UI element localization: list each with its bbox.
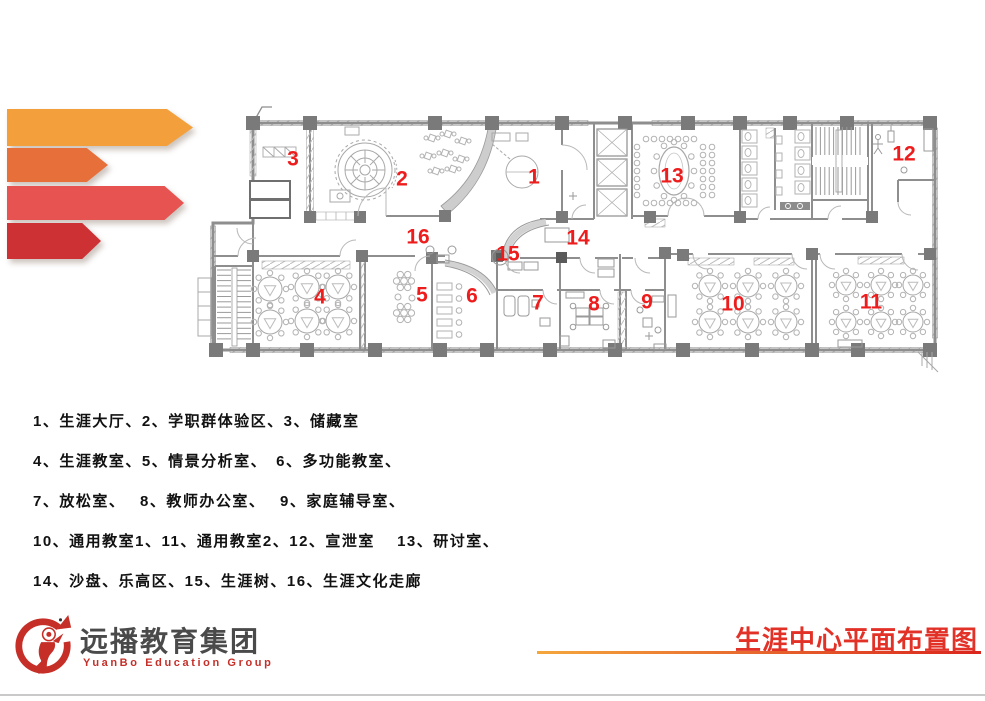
room-number-5: 5 bbox=[416, 285, 428, 306]
logo: 远播教育集团 YuanBo Education Group bbox=[14, 606, 314, 686]
room-number-13: 13 bbox=[660, 166, 683, 187]
legend-line: 1、生涯大厅、2、学职群体验区、3、储藏室 bbox=[33, 400, 499, 440]
legend-line: 14、沙盘、乐高区、15、生涯树、16、生涯文化走廊 bbox=[33, 560, 499, 600]
room-number-2: 2 bbox=[396, 169, 408, 190]
legend-line: 7、放松室、 8、教师办公室、 9、家庭辅导室、 bbox=[33, 480, 499, 520]
room-number-1: 1 bbox=[528, 167, 540, 188]
room-number-15: 15 bbox=[496, 244, 519, 265]
logo-text-cn: 远播教育集团 bbox=[80, 620, 260, 660]
room-number-9: 9 bbox=[641, 292, 653, 313]
page: { "decor": { "arrow_colors": ["#f3a03c",… bbox=[0, 0, 985, 701]
room-number-14: 14 bbox=[566, 228, 589, 249]
room-number-3: 3 bbox=[287, 149, 299, 170]
logo-icon bbox=[14, 608, 76, 682]
legend: 1、生涯大厅、2、学职群体验区、3、储藏室4、生涯教室、5、情景分析室、 6、多… bbox=[33, 400, 499, 600]
title-underline bbox=[537, 651, 981, 654]
bottom-divider bbox=[0, 694, 985, 696]
logo-text-en: YuanBo Education Group bbox=[83, 657, 273, 669]
room-number-12: 12 bbox=[892, 144, 915, 165]
room-number-11: 11 bbox=[860, 292, 882, 313]
room-number-10: 10 bbox=[721, 294, 744, 315]
room-number-16: 16 bbox=[406, 227, 429, 248]
legend-line: 10、通用教室1、11、通用教室2、12、宣泄室 13、研讨室、 bbox=[33, 520, 499, 560]
room-number-7: 7 bbox=[532, 293, 544, 314]
legend-line: 4、生涯教室、5、情景分析室、 6、多功能教室、 bbox=[33, 440, 499, 480]
room-number-4: 4 bbox=[314, 287, 326, 308]
room-number-8: 8 bbox=[588, 294, 600, 315]
room-number-6: 6 bbox=[466, 286, 478, 307]
